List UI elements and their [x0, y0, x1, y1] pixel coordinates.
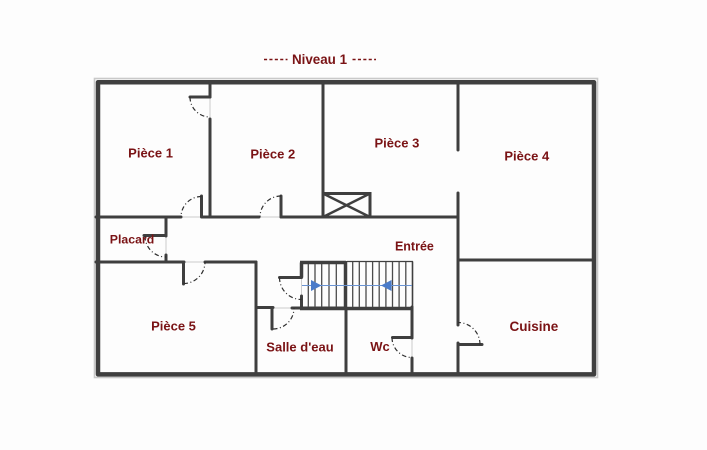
svg-text:Pièce 3: Pièce 3	[374, 135, 419, 150]
svg-text:Entrée: Entrée	[395, 239, 434, 253]
svg-text:Pièce 4: Pièce 4	[504, 149, 550, 164]
svg-text:Pièce 1: Pièce 1	[128, 145, 173, 160]
svg-text:Cuisine: Cuisine	[510, 319, 559, 334]
svg-text:Niveau 1: Niveau 1	[292, 52, 348, 67]
svg-text:Pièce 2: Pièce 2	[250, 147, 295, 162]
svg-text:Wc: Wc	[370, 339, 390, 354]
svg-text:Pièce 5: Pièce 5	[151, 319, 196, 334]
svg-text:Placard: Placard	[110, 233, 154, 247]
svg-text:Salle d'eau: Salle d'eau	[266, 340, 333, 355]
